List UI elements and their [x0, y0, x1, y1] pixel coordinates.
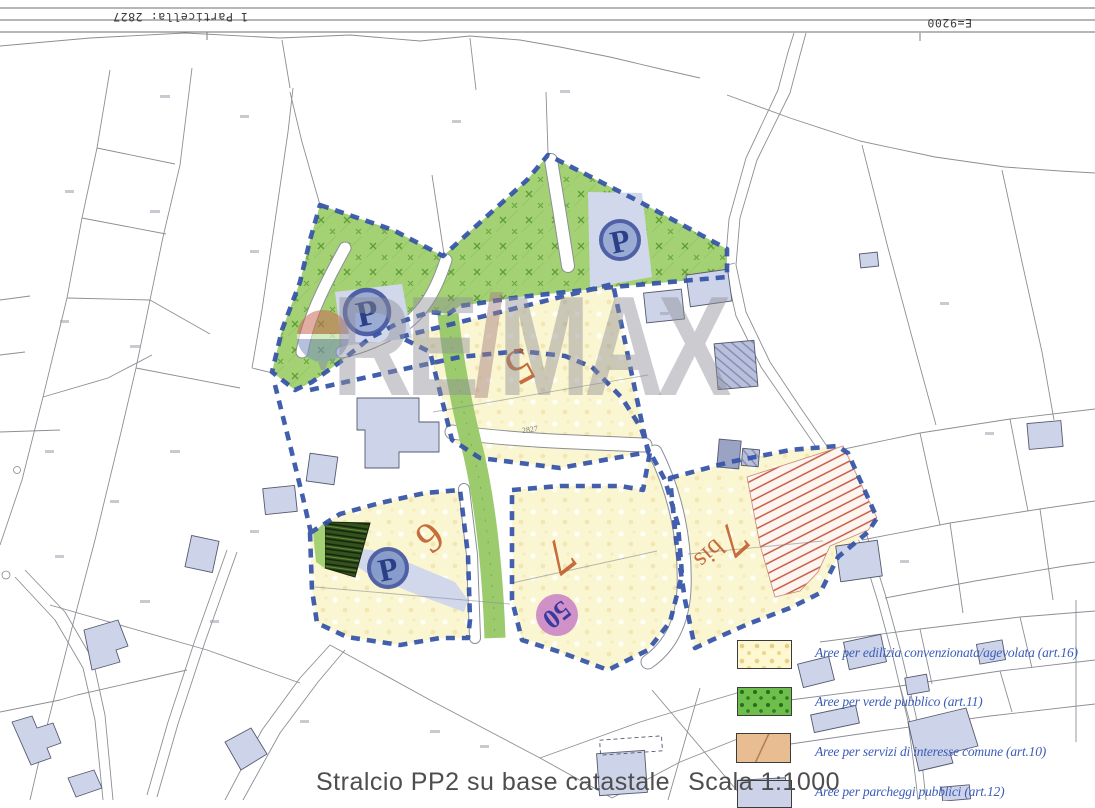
- parking-symbol-1: P: [345, 290, 389, 335]
- legend-swatch-verde: [737, 687, 792, 716]
- building: [263, 485, 298, 514]
- building: [12, 716, 61, 765]
- legend-label-servizi: Aree per servizi di interesse comune (ar…: [815, 744, 1046, 760]
- map-scale-text: Scala 1:1000: [688, 768, 840, 796]
- cadastral-map: P P P 5 6 7 7bis 50 2827: [0, 0, 1095, 801]
- building: [84, 620, 128, 670]
- building: [185, 535, 219, 572]
- building: [908, 708, 978, 771]
- building: [798, 656, 835, 687]
- legend-label-verde: Aree per verde pubblico (art.11): [815, 694, 982, 710]
- sheet-header-left: 1 Particella: 2827: [8, 10, 248, 24]
- building: [644, 289, 685, 323]
- sheet-header-right: E=9200: [872, 16, 972, 30]
- building: [686, 269, 732, 307]
- building: [714, 340, 758, 389]
- building: [905, 674, 930, 695]
- parking-symbol-2: P: [601, 221, 639, 261]
- parking-symbol-3: P: [369, 549, 407, 589]
- legend-swatch-edilizia: [737, 640, 792, 669]
- building: [836, 540, 883, 581]
- legend-label-parcheggi: Aree per parcheggi pubblici (art.12): [815, 784, 1004, 800]
- parcel-marks: [2, 467, 21, 580]
- building: [1027, 421, 1063, 450]
- cadastral-plan-page: P P P 5 6 7 7bis 50 2827 1 Par: [0, 0, 1095, 801]
- legend-label-edilizia: Aree per edilizia convenzionata/agevolat…: [815, 645, 1078, 661]
- building: [225, 728, 267, 770]
- building: [859, 252, 878, 268]
- building: [68, 770, 102, 797]
- map-title-text: Stralcio PP2 su base catastale: [316, 768, 670, 796]
- lot-50-badge: 50: [536, 594, 578, 636]
- map-title: Stralcio PP2 su base catastaleScala 1:10…: [316, 768, 840, 797]
- building: [357, 398, 439, 468]
- legend-swatch-servizi: [736, 733, 791, 763]
- building: [306, 453, 338, 485]
